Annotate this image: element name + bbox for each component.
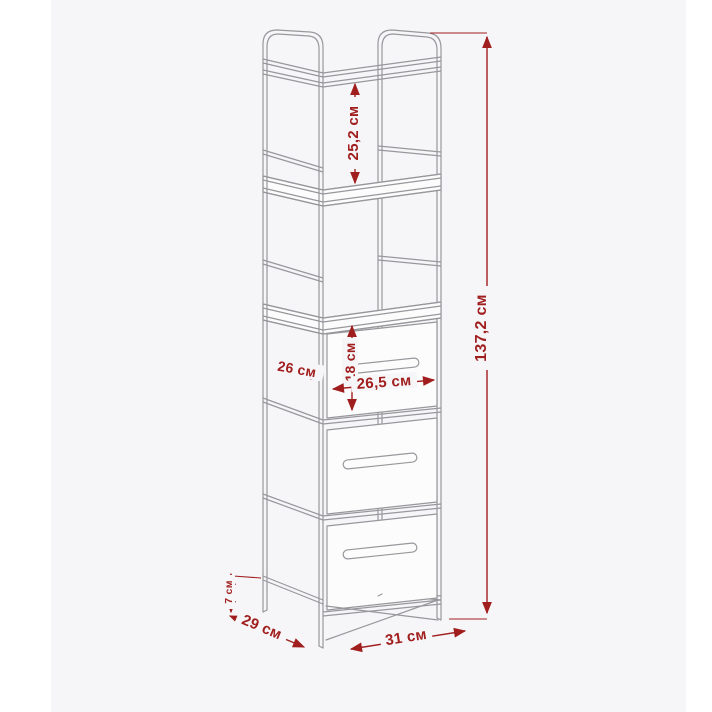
drawer-section (323, 322, 441, 616)
dimension-depth: 29 см (230, 609, 304, 647)
dimension-total-height: 137,2 см (430, 33, 490, 619)
dimension-label-leg-height: 7 см (223, 580, 235, 604)
dimension-label-side-depth: 26 см (276, 358, 317, 381)
dimension-shelf-spacing: 25,2 см (343, 84, 362, 183)
dimension-label-shelf-spacing: 25,2 см (345, 106, 362, 161)
dimension-leg-height: 7 см (221, 574, 261, 612)
dimension-label-width: 31 см (384, 626, 428, 649)
dimension-side-depth: 26 см (269, 356, 325, 381)
dimension-width: 31 см (351, 625, 465, 650)
dimension-label-total-height: 137,2 см (473, 294, 490, 362)
drawer-3-front (327, 514, 437, 610)
left-side-frame (263, 30, 323, 648)
dimension-label-depth: 29 см (239, 611, 284, 643)
furniture-dimension-diagram: 25,2 см 137,2 см 26 см 18 см 26,5 см (0, 0, 712, 712)
